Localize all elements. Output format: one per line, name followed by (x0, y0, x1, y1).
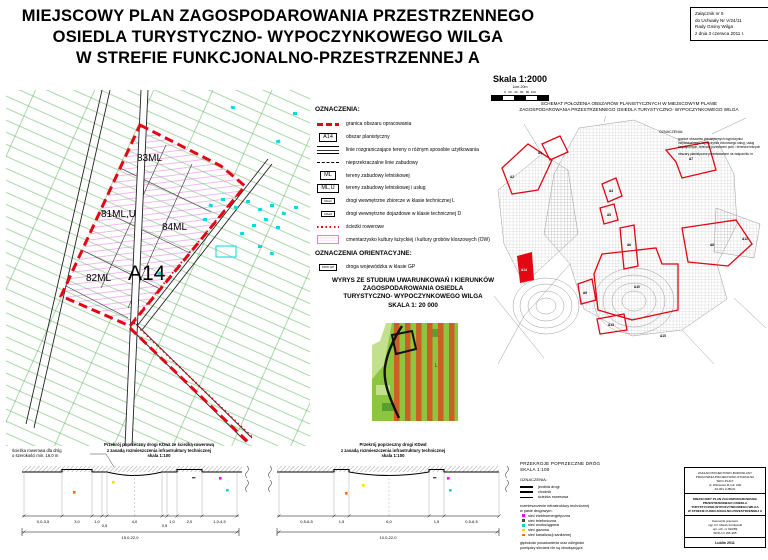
inset-label: L (435, 363, 438, 369)
svg-text:6,0: 6,0 (386, 519, 392, 524)
sections-legend: PRZEKROJE POPRZECZNE DRÓG SKALA 1:100 OZ… (520, 461, 642, 550)
label-83ml: 83ML (137, 153, 162, 164)
legend-label: jezdnia drogi (538, 485, 560, 489)
company-line: ZAKŁAD PROJEKTOWO-BUDOWLANY (687, 471, 763, 475)
svg-text:A15: A15 (660, 334, 666, 338)
page-title-line1: MIEJSCOWY PLAN ZAGOSPODAROWANIA PRZESTRZ… (8, 6, 548, 27)
main-map: 83ML 81ML,U 84ML 82ML A14 (6, 90, 310, 446)
elektro-dot (522, 514, 525, 517)
legend-item: KDwd drogi wewnętrzne dojazdowe w klasie… (315, 208, 501, 221)
attachment-line: z dnia 3 czerwca 2011 r. (695, 31, 768, 38)
legend-item: nieprzekraczalne linie zabudowy (315, 156, 501, 169)
total-dimension-label: 10,0-22,0 (380, 535, 398, 540)
break-marks (246, 466, 249, 492)
note-line: pomiędzy sieciami nie są obowiązujące (520, 546, 642, 550)
legend-label: obszary planistyczne przedstawione na za… (678, 152, 753, 156)
legend-label: drogi wewnętrzne dojazdowe w klasie tech… (346, 211, 461, 217)
cross-section-kdwz: 0,0-3,5 3,0 1,0 0,5 4,0 0,5 1,0 2,0 1,0-… (10, 440, 260, 558)
dimension-labels: 0,0-3,5 3,0 1,0 0,5 4,0 0,5 1,0 2,0 1,0-… (37, 519, 227, 528)
scale-block: Skala 1:2000 1cm-20m 0 20 40 60 80 100 (468, 74, 572, 101)
dimension-labels: 0,5-6,5 1,5 6,0 1,5 0,5-6,5 (300, 519, 478, 524)
company-line: PRACOWNIA PROJEKTOWO-STUDIALNA (687, 475, 763, 479)
svg-text:0,5: 0,5 (162, 523, 168, 528)
svg-text:A4: A4 (609, 189, 613, 193)
sections-legend-note: głębokość posadowienia oraz odległości p… (520, 541, 642, 550)
legend-item: obszary planistyczne przedstawione na za… (659, 152, 765, 156)
a14-symbol: A14 (319, 133, 337, 142)
red-outline-symbol (659, 137, 675, 149)
legend-label: ścieżki rowerowe (346, 224, 384, 230)
title-block-footer: Lublin 2011 (685, 538, 765, 547)
svg-text:A2: A2 (510, 175, 514, 179)
label-a14: A14 (128, 262, 166, 285)
dimension-line (22, 515, 239, 518)
study-title-line: SKALA 1: 20 000 (313, 302, 513, 310)
svg-text:1,5: 1,5 (339, 519, 345, 524)
scale-ticks: 0 20 40 60 80 100 (468, 90, 572, 94)
sections-legend-subtitle: OZNACZENIA: (520, 477, 642, 482)
cycle-path-symbol (315, 226, 341, 228)
utility-dots (345, 477, 452, 495)
svg-text:4,0: 4,0 (132, 519, 138, 524)
legend-label: sieć telefoniczna (528, 519, 556, 523)
attachment-line: Rady Gminy Wilga (695, 24, 768, 31)
red-fill-symbol (659, 152, 675, 156)
svg-text:A12: A12 (742, 237, 748, 241)
guide-lines (24, 472, 237, 516)
setback-line-symbol (315, 162, 341, 163)
company-line: 20-001 LUBLIN (687, 487, 763, 491)
svg-text:3,0: 3,0 (74, 519, 80, 524)
mlu-symbol: ML,U (317, 184, 338, 193)
legend-title: OZNACZENIA: (315, 106, 501, 113)
legend-label: obszar planistyczny (346, 134, 390, 140)
svg-text:A9: A9 (583, 291, 587, 295)
svg-text:0,0-3,5: 0,0-3,5 (37, 519, 50, 524)
legend-item: ścieżka rowerowa (520, 495, 642, 500)
study-extract-title: WYRYS ZE STUDIUM UWARUNKOWAŃ I KIERUNKÓW… (313, 277, 513, 310)
cemetery-symbol (315, 235, 341, 244)
legend-label: granica obszaru opracowania (346, 121, 411, 127)
study-inset-map: L (372, 323, 458, 421)
legend-item: ML,U tereny zabudowy letniskowej i usług (315, 182, 501, 195)
plan-line: MIEJSCOWY PLAN ZAGOSPODAROWANIA (687, 497, 763, 501)
note-leader (90, 454, 114, 467)
utility-dots (73, 477, 229, 494)
gaz-dot (522, 529, 525, 532)
schematic-legend: OZNACZENIA: granice obszarów planistyczn… (659, 130, 765, 159)
legend-item: ścieżki rowerowe (315, 220, 501, 233)
cyclepath-line-symbol (520, 497, 535, 498)
svg-text:A1: A1 (538, 151, 542, 155)
svg-text:0,5-6,5: 0,5-6,5 (300, 519, 313, 524)
plan-sheet: MIEJSCOWY PLAN ZAGOSPODAROWANIA PRZESTRZ… (0, 0, 768, 560)
legend-label: linie rozgraniczające tereny o różnym sp… (346, 147, 479, 153)
ground-hatch (22, 466, 242, 472)
legend-label: sieć wodociągowa (528, 523, 559, 527)
legend-label: sieć gazowa (528, 528, 549, 532)
legend-item: A14 obszar planistyczny (315, 131, 501, 144)
study-title-line: TURYSTYCZNO- WYPOCZYNKOWEGO WILGA (313, 293, 513, 301)
svg-text:1,5: 1,5 (434, 519, 440, 524)
label-81mlu: 81ML,U (101, 209, 136, 220)
legend-item: linie rozgraniczające tereny o różnym sp… (315, 144, 501, 157)
legend-label: sieć elektroenergetyczna (528, 514, 570, 518)
page-title: MIEJSCOWY PLAN ZAGOSPODAROWANIA PRZESTRZ… (8, 6, 548, 69)
schematic-legend-title: OZNACZENIA: (659, 130, 765, 134)
ml-symbol: ML (320, 171, 336, 180)
svg-text:A10: A10 (634, 285, 640, 289)
scale-sub: 1cm-20m (468, 85, 572, 89)
legend: OZNACZENIA: granica obszaru opracowania … (315, 106, 501, 246)
attachment-line: do Uchwały Nr V/24/11 (695, 18, 768, 25)
svg-text:A13: A13 (608, 323, 614, 327)
legend-label: nieprzekraczalne linie zabudowy (346, 160, 418, 166)
label-84ml: 84ML (162, 222, 187, 233)
schematic-title-line: ZAGOSPODAROWANIA PRZESTRZENNEGO OSIEDLA … (492, 107, 766, 113)
label-82ml: 82ML (86, 273, 111, 284)
kanalizacja-dot (522, 534, 525, 537)
svg-text:1,0: 1,0 (169, 519, 175, 524)
title-block: ZAKŁAD PROJEKTOWO-BUDOWLANY PRACOWNIA PR… (684, 467, 766, 548)
scale-label: Skala 1:2000 (468, 74, 572, 84)
schematic-title: SCHEMAT POŁOŻENIA OBSZARÓW PLANISTYCZNYC… (492, 101, 766, 113)
study-title-line: WYRYS ZE STUDIUM UWARUNKOWAŃ I KIERUNKÓW (313, 277, 513, 285)
kdwz-symbol: KDwz (321, 198, 335, 205)
page-title-line2: OSIEDLA TURYSTYCZNO- WYPOCZYNKOWEGO WILG… (8, 27, 548, 48)
legend-label: tereny zabudowy letniskowej i usług (346, 185, 426, 191)
attachment-note: Załącznik nr 5 do Uchwały Nr V/24/11 Rad… (690, 7, 768, 41)
legend-label: sieć kanalizacji sanitarnej (528, 533, 571, 537)
guide-lines (279, 472, 499, 516)
legend-label: chodnik (538, 490, 551, 494)
boundary-symbol (315, 123, 341, 126)
woda-dot (522, 524, 525, 527)
legend-item: KDwz drogi wewnętrzne zbiorcze w klasie … (315, 195, 501, 208)
plan-line: W STREFIE FUNKCJONALNO-PRZESTRZENNEJ A (687, 509, 763, 513)
legend-label: drogi wewnętrzne zbiorcze w klasie techn… (346, 198, 455, 204)
page-title-line3: W STREFIE FUNKCJONALNO-PRZESTRZENNEJ A (8, 48, 548, 69)
ground-hatch (277, 466, 499, 472)
study-title-line: ZAGOSPODAROWANIA OSIEDLA (313, 285, 513, 293)
total-dimension-label: 15,0-22,0 (122, 535, 140, 540)
legend-item: cmentarzysko kultury łużyckiej i kultury… (315, 233, 501, 246)
sidewalk-line-symbol (520, 491, 535, 492)
svg-text:0,5-6,5: 0,5-6,5 (465, 519, 478, 524)
legend-item: KDW GP droga wojewódzka w klasie GP (315, 261, 501, 274)
title-block-company: ZAKŁAD PROJEKTOWO-BUDOWLANY PRACOWNIA PR… (685, 468, 765, 494)
legend-item: granica obszaru opracowania (315, 118, 501, 131)
roadway-line-symbol (520, 486, 535, 488)
legend-item: sieć kanalizacji sanitarnej (522, 533, 642, 538)
kdwd-symbol: KDwd (321, 211, 335, 218)
title-block-author: Kierownik pracowni mgr inż. Marek Kozłow… (685, 516, 765, 538)
svg-text:1,0: 1,0 (94, 519, 100, 524)
legend-item: granice obszarów planistycznych wypoczyn… (659, 137, 765, 149)
telefon-dot (522, 519, 525, 522)
svg-text:A6: A6 (627, 243, 631, 247)
svg-text:A14: A14 (521, 268, 527, 272)
cross-section-kdwd: 0,5-6,5 1,5 6,0 1,5 0,5-6,5 10,0-22,0 (265, 440, 515, 558)
author-line: WOIU nr WA-395 (687, 531, 763, 535)
kdwgp-symbol: KDW GP (319, 264, 337, 271)
svg-text:A5: A5 (607, 213, 611, 217)
legend-label: cmentarzysko kultury łużyckiej i kultury… (346, 237, 490, 243)
orient-legend: OZNACZENIA ORIENTACYJNE: KDW GP droga wo… (315, 250, 501, 274)
attachment-line: Załącznik nr 5 (695, 11, 768, 18)
svg-text:A8: A8 (710, 243, 714, 247)
sections-legend-scale: SKALA 1:100 (520, 467, 642, 473)
legend-label: ścieżka rowerowa (538, 495, 568, 499)
svg-text:2,0: 2,0 (187, 519, 193, 524)
dimension-line (277, 515, 501, 518)
svg-text:0,5: 0,5 (102, 523, 108, 528)
plan-line: TURYSTYCZNO-WYPOCZYNKOWEGO WILGA (687, 505, 763, 509)
boundary-lines-symbol (315, 146, 341, 154)
legend-label: droga wojewódzka w klasie GP (346, 264, 415, 270)
title-block-plan: MIEJSCOWY PLAN ZAGOSPODAROWANIA PRZESTRZ… (685, 494, 765, 516)
infra-intro: rozmieszczenie infrastruktury techniczne… (520, 504, 642, 513)
legend-label: tereny zabudowy letniskowej (346, 173, 410, 179)
legend-label: granice obszarów planistycznych wypoczyn… (678, 137, 765, 149)
orient-legend-title: OZNACZENIA ORIENTACYJNE: (315, 250, 501, 257)
legend-item: ML tereny zabudowy letniskowej (315, 169, 501, 182)
svg-text:1,0-4,5: 1,0-4,5 (213, 519, 226, 524)
